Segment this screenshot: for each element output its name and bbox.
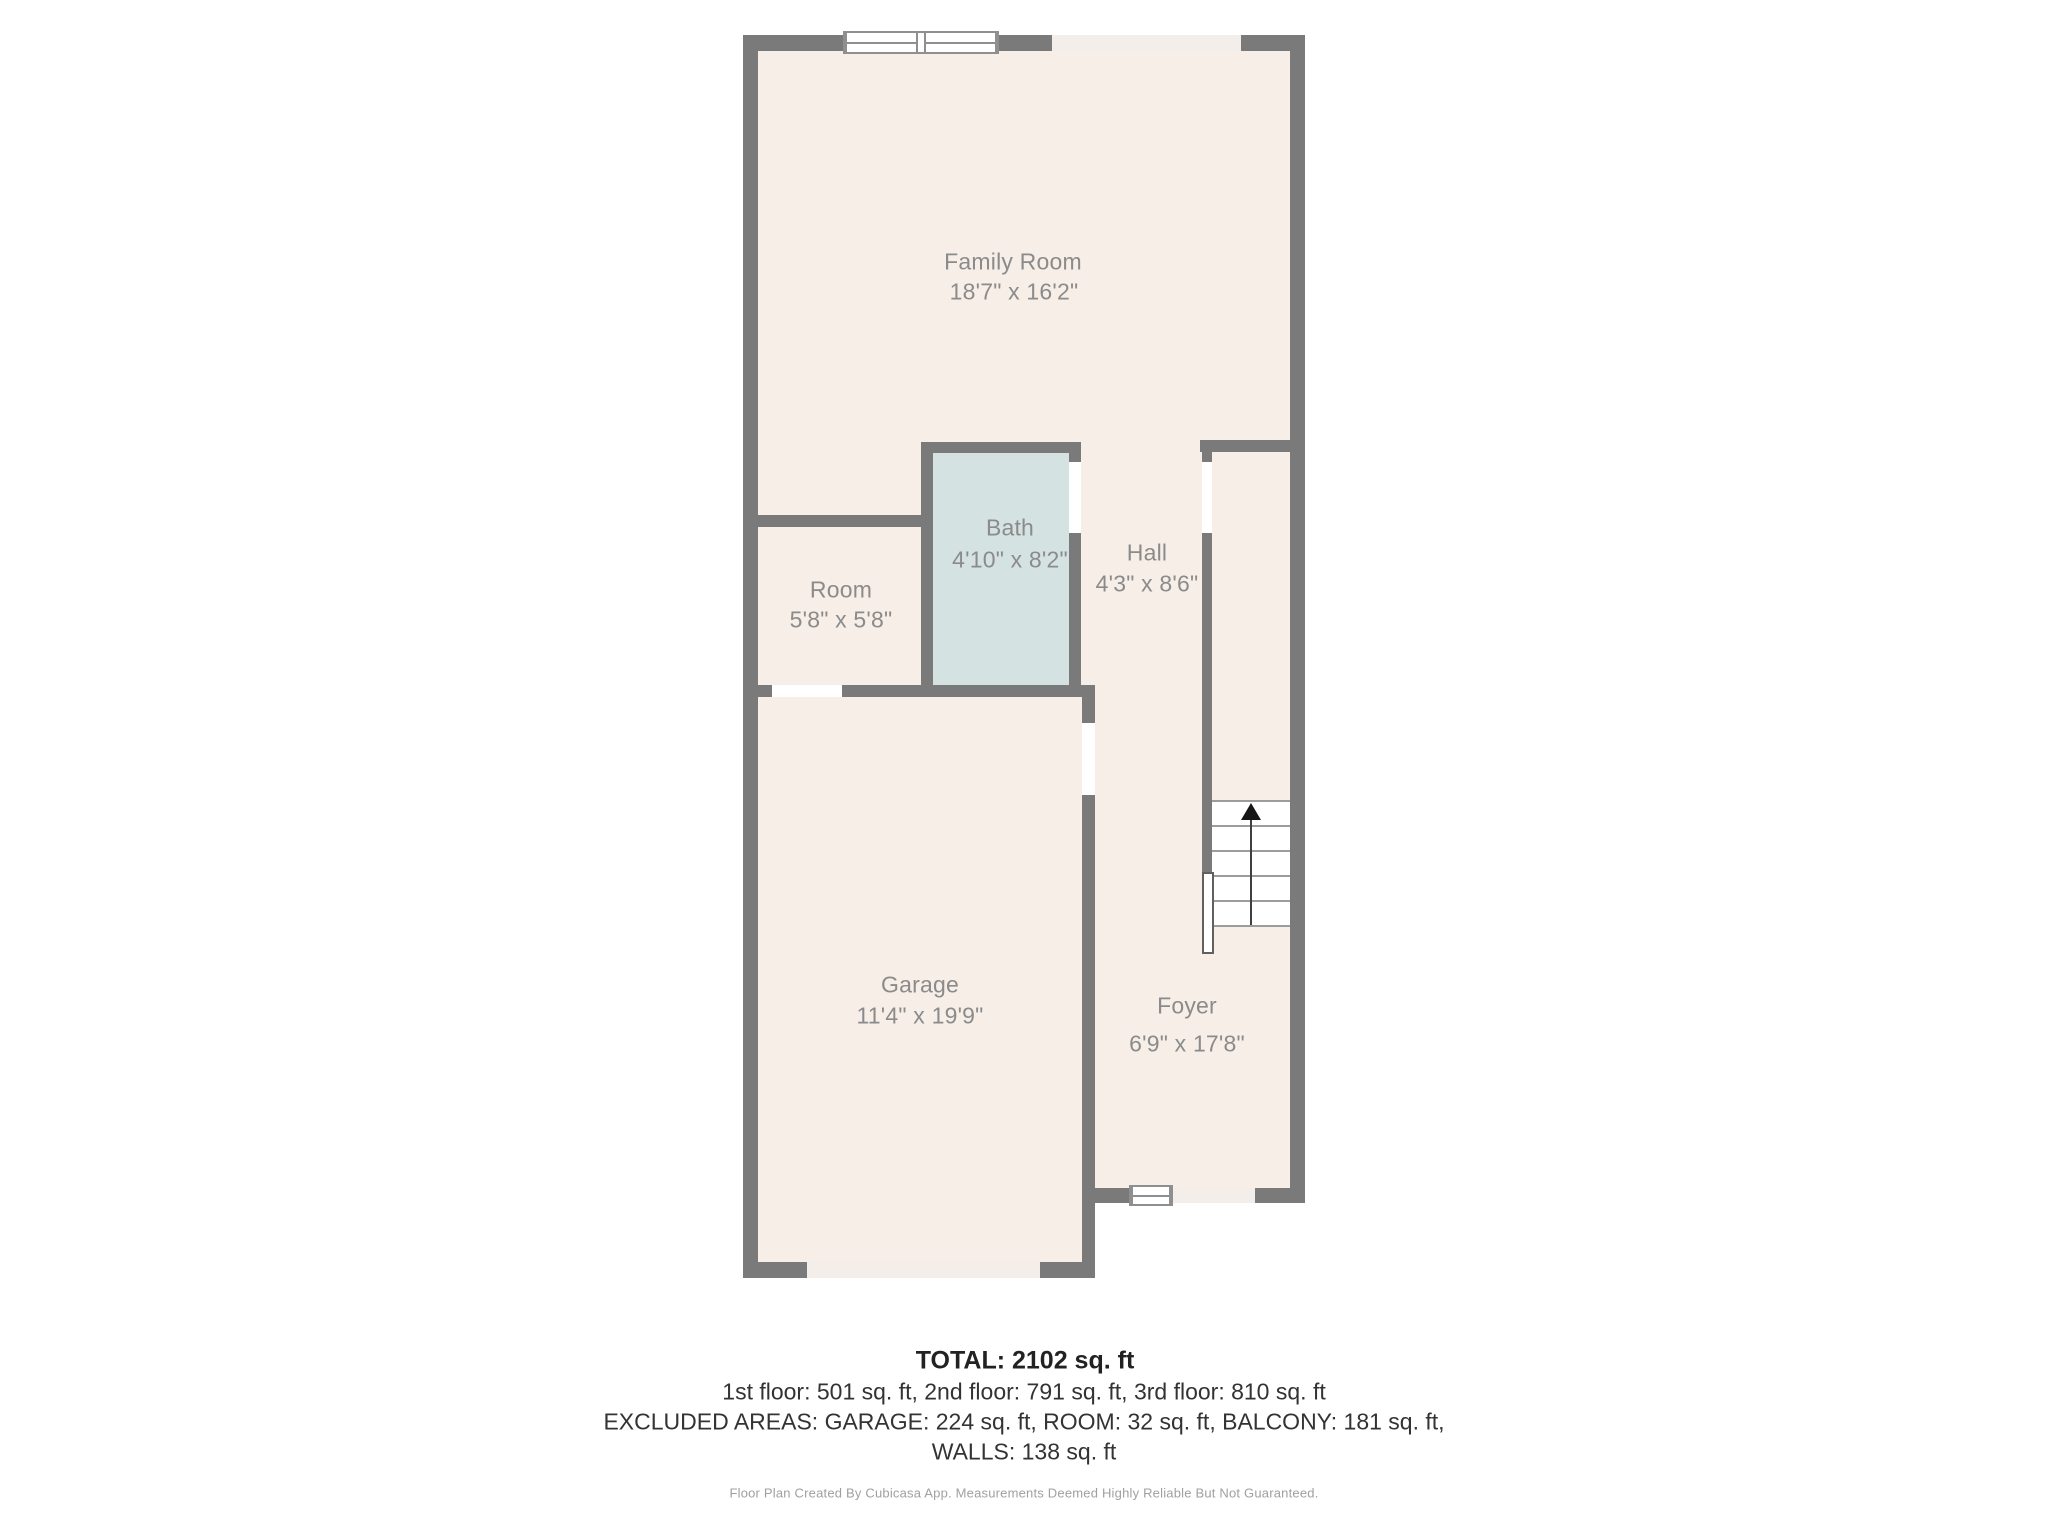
floor-plan-page: Family Room 18'7" x 16'2" Room 5'8" x 5'…: [0, 0, 2048, 1536]
room-label-room: Room: [810, 577, 872, 604]
stair-handrail: [1202, 872, 1214, 954]
room-label-foyer: Foyer: [1157, 993, 1217, 1020]
wall-bath-top: [921, 442, 1081, 453]
room-dims-garage: 11'4" x 19'9": [856, 1003, 983, 1030]
staircase: [1212, 800, 1290, 927]
stair-direction-line: [1250, 814, 1252, 925]
front-door-opening: [1172, 1188, 1255, 1203]
balcony-opening: [1052, 35, 1241, 51]
room-label-bath: Bath: [986, 515, 1034, 542]
wall-bath-left: [921, 442, 933, 697]
window-pane: [845, 33, 918, 52]
room-label-hall: Hall: [1127, 540, 1167, 567]
door-opening-garage-foyer: [1082, 723, 1095, 795]
disclaimer: Floor Plan Created By Cubicasa App. Meas…: [729, 1486, 1318, 1501]
room-label-family-room: Family Room: [944, 249, 1082, 276]
door-opening-room-garage: [772, 685, 842, 697]
summary-walls: WALLS: 138 sq. ft: [932, 1439, 1117, 1466]
room-dims-room: 5'8" x 5'8": [790, 607, 893, 634]
window-pane: [1131, 1187, 1171, 1204]
window-pane: [924, 33, 997, 52]
room-dims-bath: 4'10" x 8'2": [952, 547, 1068, 574]
family-room-window-icon: [843, 31, 999, 54]
summary-excluded-areas: EXCLUDED AREAS: GARAGE: 224 sq. ft, ROOM…: [603, 1409, 1444, 1436]
door-opening-hall-stairs: [1202, 462, 1212, 533]
wall-outer-left: [743, 35, 758, 1278]
room-dims-hall: 4'3" x 8'6": [1096, 571, 1199, 598]
wall-outer-right: [1290, 35, 1305, 1203]
door-opening-bath-hall: [1069, 462, 1081, 533]
summary-total: TOTAL: 2102 sq. ft: [916, 1347, 1135, 1376]
room-dims-family-room: 18'7" x 16'2": [950, 279, 1079, 306]
room-label-garage: Garage: [881, 972, 959, 999]
garage-door-opening: [807, 1262, 1040, 1278]
wall-familyroom-bottom: [743, 515, 933, 527]
room-dims-foyer: 6'9" x 17'8": [1129, 1031, 1245, 1058]
stairs-up-arrow-icon: [1241, 803, 1261, 820]
wall-hall-top-stub: [1200, 440, 1290, 452]
summary-floors: 1st floor: 501 sq. ft, 2nd floor: 791 sq…: [722, 1379, 1325, 1406]
foyer-sidelight-window-icon: [1129, 1185, 1173, 1206]
